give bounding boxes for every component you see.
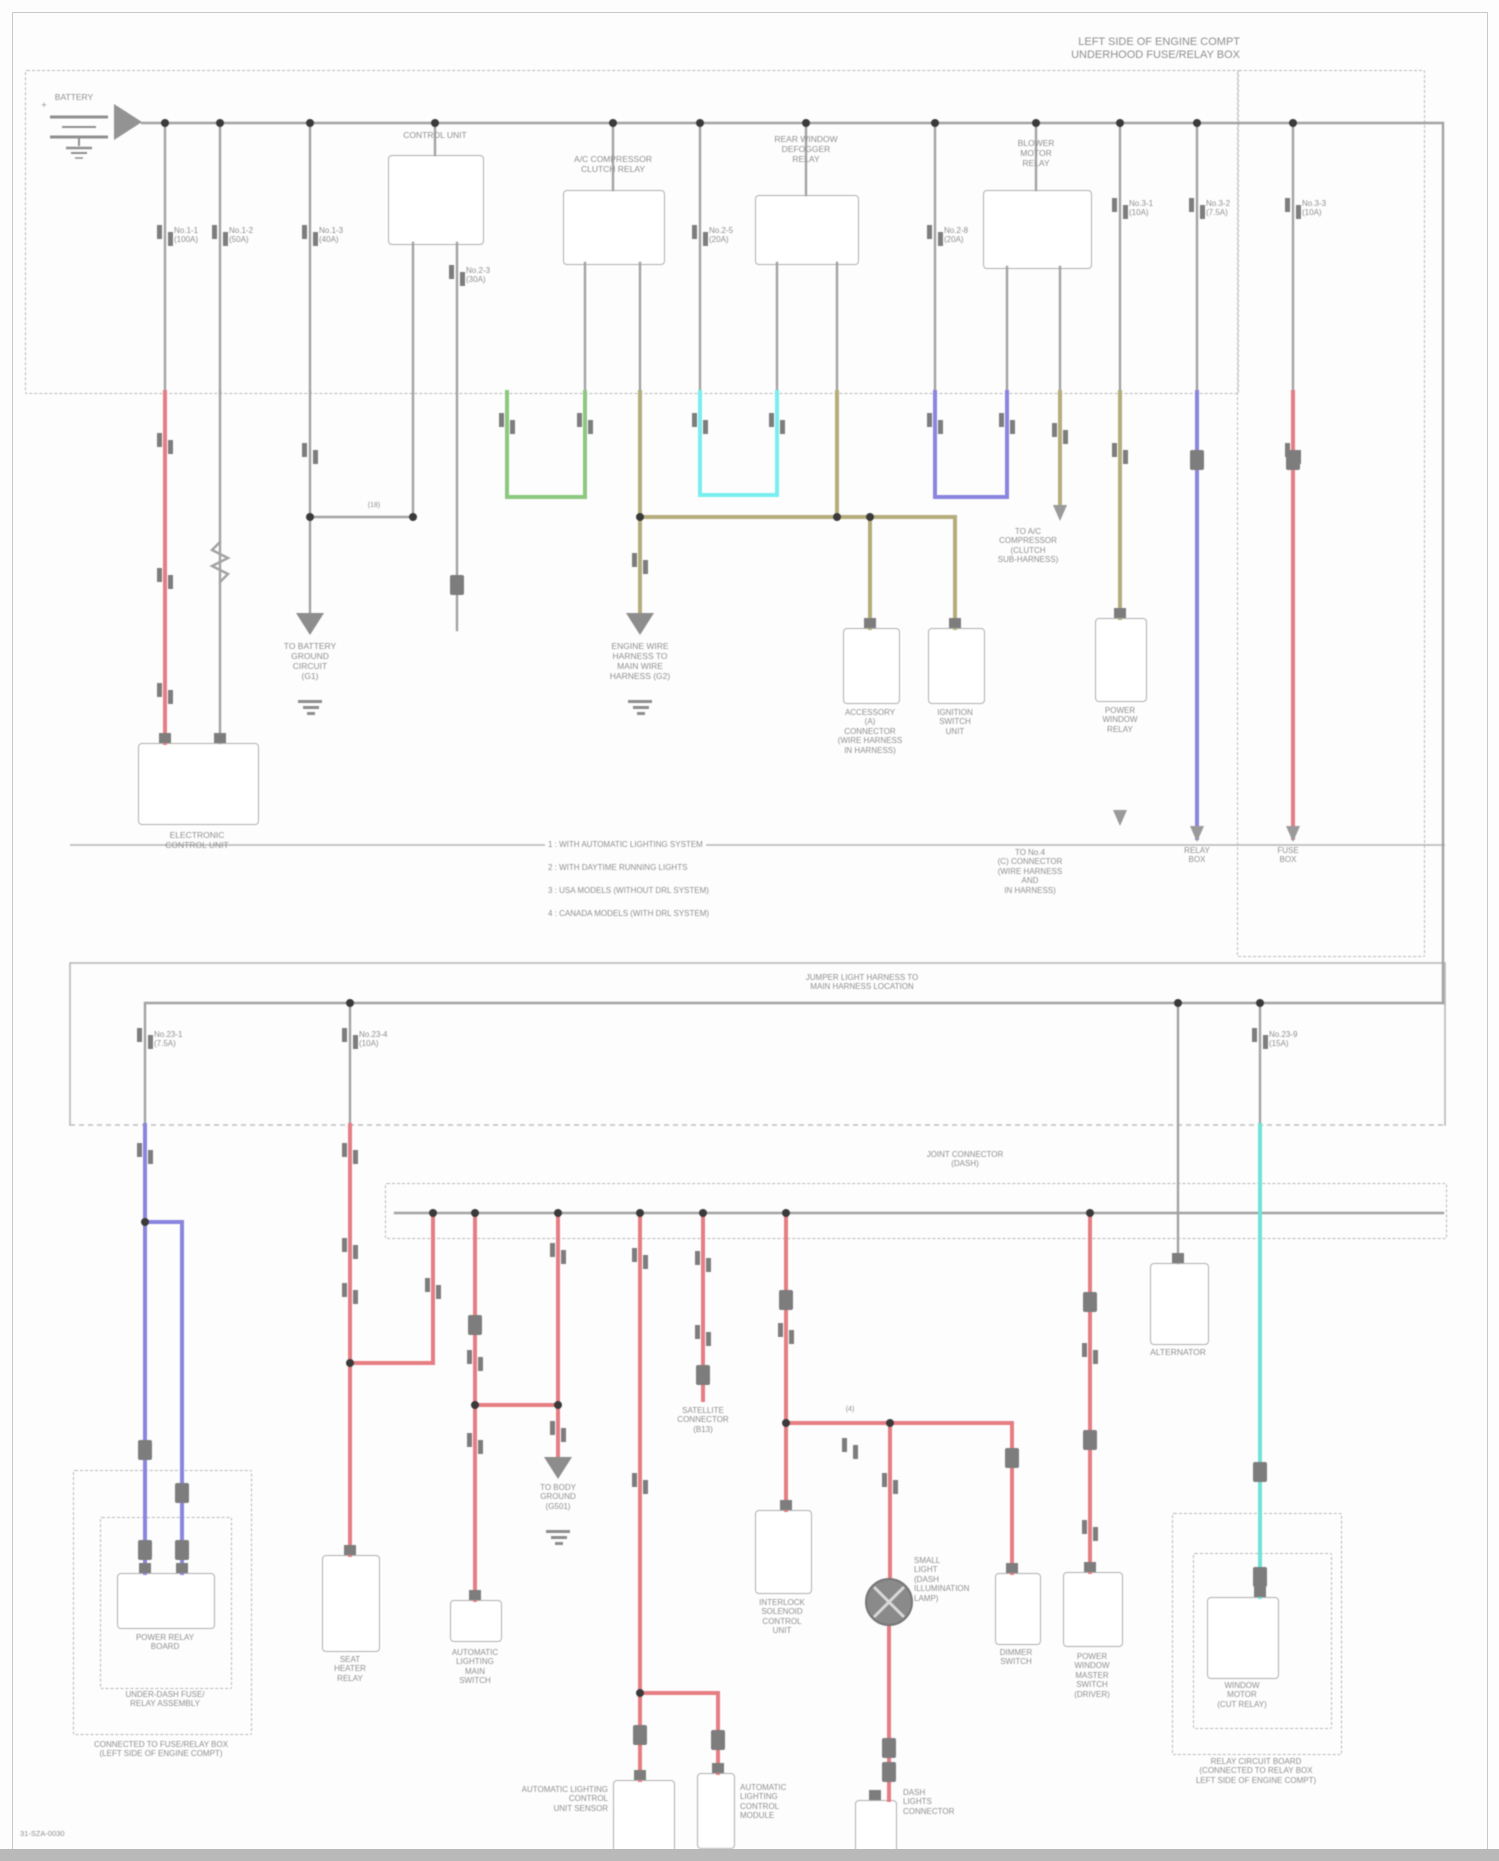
dash-lights-label: DASHLIGHTSCONNECTOR bbox=[903, 1788, 954, 1816]
fuse-label-9: No.3-3(10A) bbox=[1302, 199, 1326, 218]
relay-box-ref-label: RELAYBOX bbox=[1184, 846, 1210, 865]
fuse-label-11: No.23-4(10A) bbox=[359, 1030, 387, 1049]
ecu-label: ELECTRONICCONTROL UNIT bbox=[165, 830, 228, 850]
fuse-label-1: No.1-1(100A) bbox=[174, 226, 198, 245]
corner-note: LEFT SIDE OF ENGINE COMPTUNDERHOOD FUSE/… bbox=[1071, 36, 1240, 62]
connector-a-label: ACCESSORY(A)CONNECTOR(WIRE HARNESSIN HAR… bbox=[838, 708, 902, 755]
lighting-sensor-label: AUTOMATIC LIGHTINGCONTROLUNIT SENSOR bbox=[522, 1785, 608, 1813]
fuse-label-8: No.3-2(7.5A) bbox=[1206, 199, 1230, 218]
labels-layer: LEFT SIDE OF ENGINE COMPTUNDERHOOD FUSE/… bbox=[0, 0, 1499, 1861]
fuse-label-3: No.1-3(40A) bbox=[319, 226, 343, 245]
link-4-label: (4) bbox=[846, 1406, 855, 1414]
link-18-label: (18) bbox=[368, 502, 380, 510]
lighting-module-label: AUTOMATICLIGHTINGCONTROLMODULE bbox=[740, 1783, 786, 1821]
joint-connector-label: JOINT CONNECTOR(DASH) bbox=[927, 1150, 1004, 1169]
scan-edge bbox=[0, 1849, 1499, 1861]
ground3-label: TO BODYGROUND(G501) bbox=[540, 1483, 576, 1511]
wiring-diagram-page: LEFT SIDE OF ENGINE COMPTUNDERHOOD FUSE/… bbox=[0, 0, 1499, 1861]
ignition-unit-label: IGNITIONSWITCHUNIT bbox=[937, 708, 973, 736]
fuse-label-12: No.23-9(15A) bbox=[1269, 1030, 1297, 1049]
underdash-box-label: UNDER-DASH FUSE/RELAY ASSEMBLY bbox=[125, 1690, 204, 1709]
legend-row-1: 1 : WITH AUTOMATIC LIGHTING SYSTEM bbox=[545, 840, 706, 849]
small-light-label: SMALLLIGHT(DASHILLUMINATIONLAMP) bbox=[914, 1556, 969, 1603]
fuse-label-4: No.2-3(30A) bbox=[466, 266, 490, 285]
battery-plus: + bbox=[41, 100, 46, 111]
ground1-label: TO BATTERYGROUNDCIRCUIT(G1) bbox=[284, 641, 336, 681]
fuse-label-10: No.23-1(7.5A) bbox=[154, 1030, 182, 1049]
power-window-relay-label: POWERWINDOWRELAY bbox=[1102, 706, 1137, 734]
jumper-harness-note: JUMPER LIGHT HARNESS TOMAIN HARNESS LOCA… bbox=[806, 973, 918, 992]
relay-board-label: POWER RELAYBOARD bbox=[136, 1633, 194, 1652]
fuse-label-5: No.2-5(20A) bbox=[709, 226, 733, 245]
to-connector-note: TO No.4(C) CONNECTOR(WIRE HARNESSANDIN H… bbox=[998, 848, 1063, 895]
to-compressor-label: TO A/CCOMPRESSOR(CLUTCHSUB-HARNESS) bbox=[998, 527, 1058, 565]
ground2-label: ENGINE WIREHARNESS TOMAIN WIREHARNESS (G… bbox=[610, 641, 670, 681]
br-outer-label: RELAY CIRCUIT BOARD(CONNECTED TO RELAY B… bbox=[1196, 1757, 1316, 1785]
window-motor-label: WINDOWMOTOR(CUT RELAY) bbox=[1217, 1681, 1267, 1709]
legend-row-3: 3 : USA MODELS (WITHOUT DRL SYSTEM) bbox=[545, 886, 712, 895]
battery-label: BATTERY bbox=[55, 92, 93, 102]
diagram-area: LEFT SIDE OF ENGINE COMPTUNDERHOOD FUSE/… bbox=[0, 0, 1499, 1861]
window-master-switch-label: POWERWINDOWMASTERSWITCH(DRIVER) bbox=[1074, 1652, 1110, 1699]
satellite-connector-label: SATELLITECONNECTOR(B13) bbox=[677, 1406, 728, 1434]
alternator-label: ALTERNATOR bbox=[1150, 1347, 1206, 1357]
relay3-label: REAR WINDOWDEFOGGERRELAY bbox=[774, 134, 837, 164]
bl-outer-label: CONNECTED TO FUSE/RELAY BOX(LEFT SIDE OF… bbox=[94, 1740, 228, 1759]
doc-code: 31-SZA-0030 bbox=[20, 1830, 65, 1839]
relay2-label: A/C COMPRESSORCLUTCH RELAY bbox=[574, 154, 652, 174]
dimmer-switch-label: DIMMERSWITCH bbox=[1000, 1648, 1032, 1667]
relay4-label: BLOWERMOTORRELAY bbox=[1018, 138, 1055, 168]
seat-heater-relay-label: SEATHEATERRELAY bbox=[334, 1655, 366, 1683]
relay1-label: CONTROL UNIT bbox=[403, 130, 466, 140]
fuse-label-2: No.1-2(50A) bbox=[229, 226, 253, 245]
lighting-switch-label: AUTOMATICLIGHTINGMAINSWITCH bbox=[452, 1648, 498, 1686]
interlock-unit-label: INTERLOCKSOLENOIDCONTROLUNIT bbox=[759, 1598, 805, 1636]
fuse-label-7: No.3-1(10A) bbox=[1129, 199, 1153, 218]
fuse-label-6: No.2-8(20A) bbox=[944, 226, 968, 245]
fuse-box-ref-label: FUSEBOX bbox=[1277, 846, 1298, 865]
legend-row-2: 2 : WITH DAYTIME RUNNING LIGHTS bbox=[545, 863, 690, 872]
legend-row-4: 4 : CANADA MODELS (WITH DRL SYSTEM) bbox=[545, 909, 712, 918]
